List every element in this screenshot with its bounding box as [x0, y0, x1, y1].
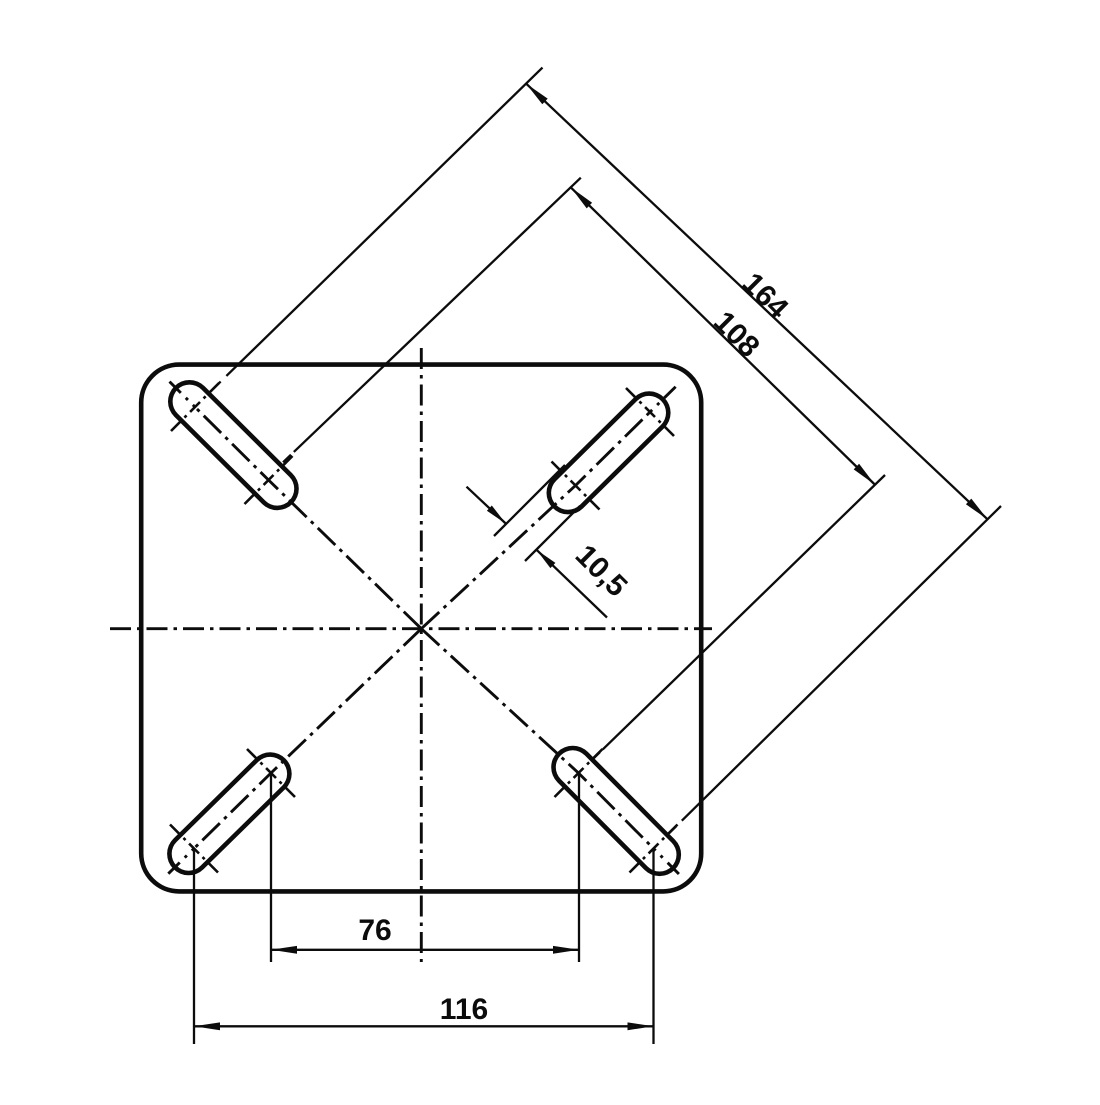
svg-text:76: 76 [358, 914, 391, 947]
svg-text:116: 116 [440, 993, 488, 1026]
